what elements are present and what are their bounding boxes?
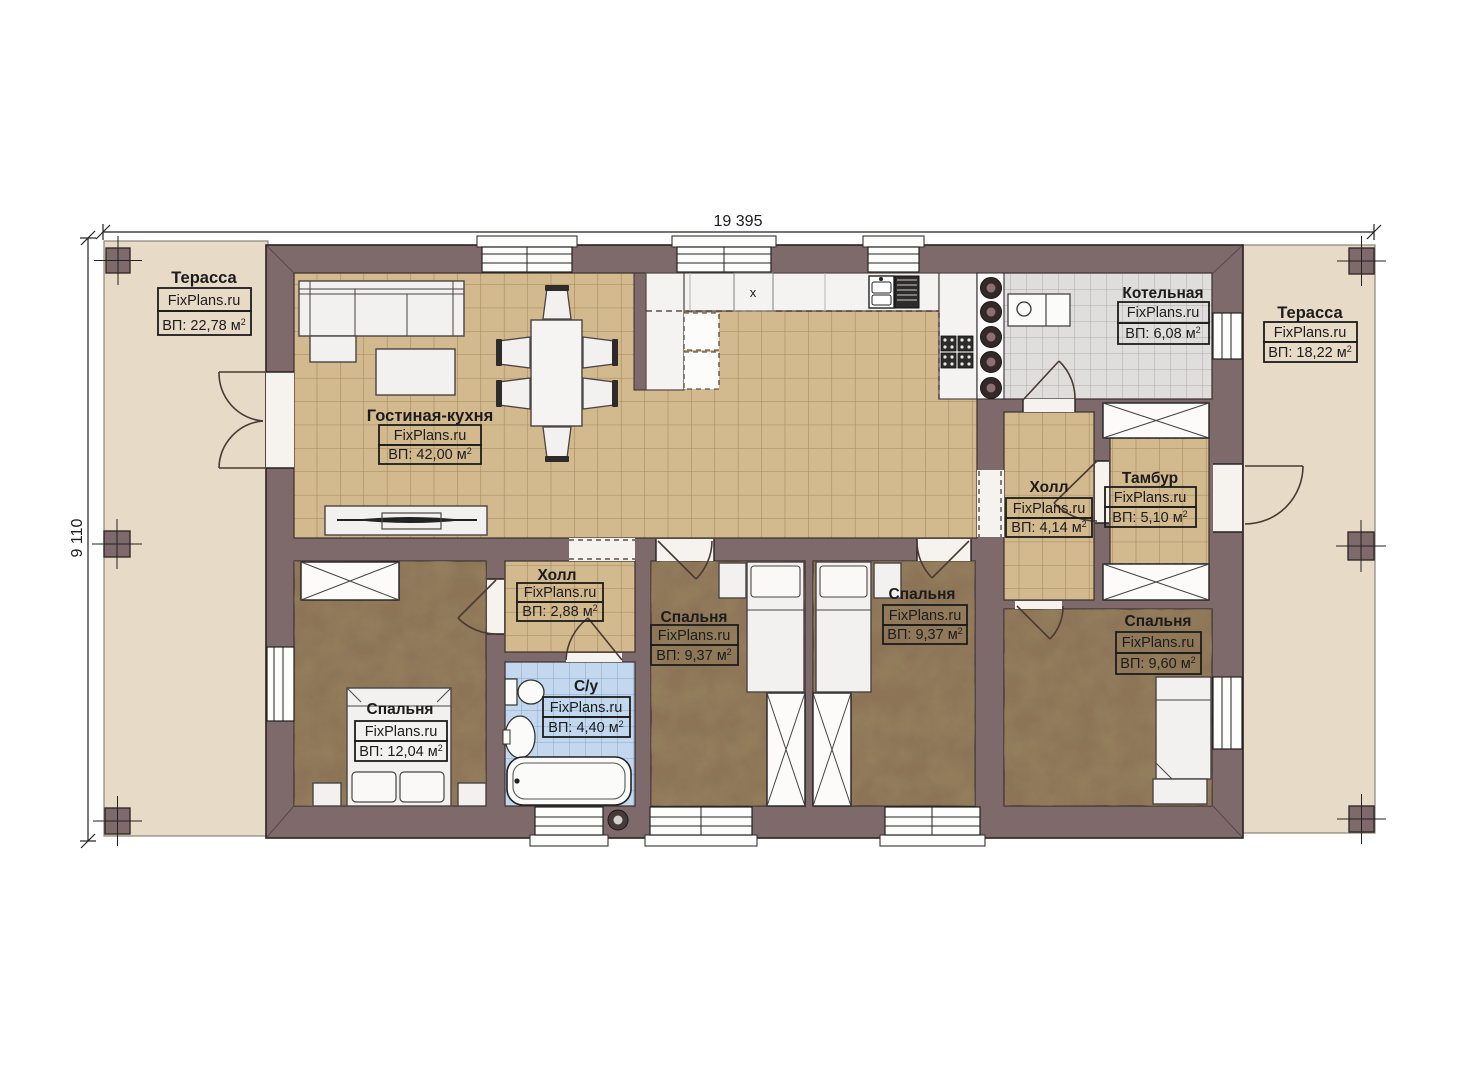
svg-text:ВП: 4,14 м2: ВП: 4,14 м2 [1011,519,1086,536]
svg-text:FixPlans.ru: FixPlans.ru [889,608,962,624]
svg-text:FixPlans.ru: FixPlans.ru [550,700,623,716]
svg-text:С/у: С/у [574,678,599,695]
svg-text:Холл: Холл [538,567,577,584]
svg-text:Тамбур: Тамбур [1122,470,1178,487]
svg-text:FixPlans.ru: FixPlans.ru [365,724,438,740]
svg-text:FixPlans.ru: FixPlans.ru [168,293,241,309]
svg-text:FixPlans.ru: FixPlans.ru [524,585,597,601]
svg-text:ВП: 9,60 м2: ВП: 9,60 м2 [1120,655,1195,672]
svg-text:ВП: 9,37 м2: ВП: 9,37 м2 [656,647,731,664]
svg-text:FixPlans.ru: FixPlans.ru [394,428,467,444]
svg-text:Гостиная-кухня: Гостиная-кухня [367,407,493,425]
svg-text:ВП: 9,37 м2: ВП: 9,37 м2 [887,626,962,643]
svg-text:19 395: 19 395 [714,213,763,230]
svg-text:FixPlans.ru: FixPlans.ru [1013,501,1086,517]
svg-text:Терасса: Терасса [1277,304,1343,322]
svg-text:FixPlans.ru: FixPlans.ru [1114,490,1187,506]
svg-text:Спальня: Спальня [889,586,956,603]
svg-text:9 110: 9 110 [69,518,86,557]
svg-text:Спальня: Спальня [1125,613,1192,630]
svg-text:ВП: 18,22 м2: ВП: 18,22 м2 [1268,344,1351,361]
svg-text:FixPlans.ru: FixPlans.ru [658,628,731,644]
svg-text:Холл: Холл [1030,479,1069,496]
svg-text:ВП: 42,00 м2: ВП: 42,00 м2 [388,446,471,463]
svg-text:ВП: 12,04 м2: ВП: 12,04 м2 [359,743,442,760]
svg-text:FixPlans.ru: FixPlans.ru [1122,635,1195,651]
svg-text:Котельная: Котельная [1122,285,1203,302]
svg-text:ВП: 5,10 м2: ВП: 5,10 м2 [1112,509,1187,526]
svg-text:x: x [750,285,757,300]
svg-text:ВП: 22,78 м2: ВП: 22,78 м2 [162,317,245,334]
svg-text:FixPlans.ru: FixPlans.ru [1127,305,1200,321]
svg-text:ВП: 4,40 м2: ВП: 4,40 м2 [548,719,623,736]
svg-text:FixPlans.ru: FixPlans.ru [1274,325,1347,341]
svg-text:Спальня: Спальня [367,701,434,718]
svg-text:ВП: 2,88 м2: ВП: 2,88 м2 [522,603,597,620]
svg-text:Спальня: Спальня [661,609,728,626]
svg-text:ВП: 6,08 м2: ВП: 6,08 м2 [1125,325,1200,342]
svg-text:Терасса: Терасса [171,269,237,287]
